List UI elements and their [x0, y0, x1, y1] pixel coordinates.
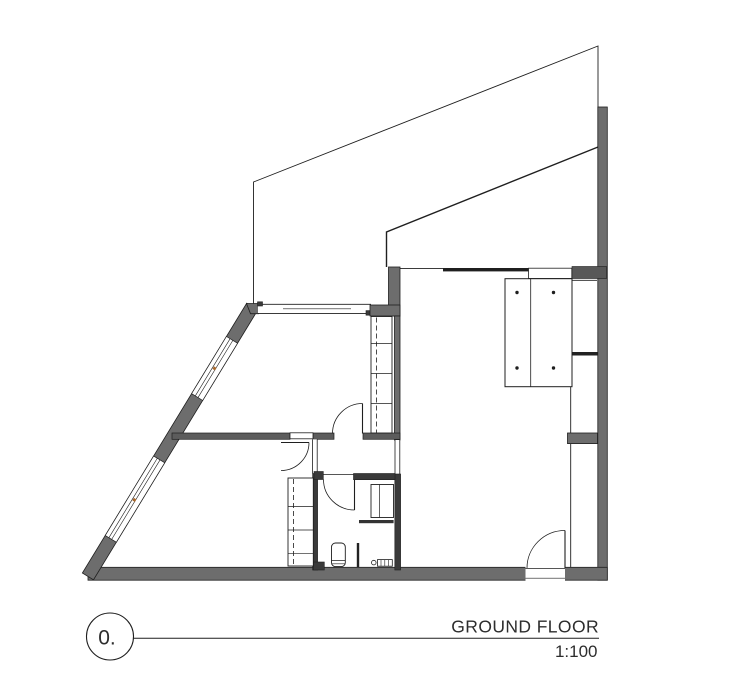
shelf [359, 520, 394, 523]
partition-stub [568, 433, 598, 444]
doors [281, 404, 565, 569]
top-window [529, 268, 572, 278]
floor-number-label: 0. [98, 627, 116, 650]
washer-cabinet [371, 485, 394, 518]
door-entrance [527, 531, 565, 569]
spine-wall-foot [370, 305, 400, 316]
drawing-scale: 1:100 [555, 642, 598, 661]
right-wall [598, 107, 608, 580]
partition-post [357, 543, 359, 567]
spine-wall-thin [395, 440, 400, 474]
built-ins [288, 317, 392, 567]
door-bathroom [324, 480, 355, 511]
radiator [372, 560, 393, 567]
right-room-top-wall [400, 267, 607, 279]
window-upper [192, 336, 238, 400]
hall-wall [172, 433, 400, 440]
spine-wall-mid [395, 316, 401, 440]
toilet [332, 543, 346, 567]
wardrobe-lower-room [288, 478, 313, 566]
title-block: 0. GROUND FLOOR 1:100 [87, 613, 600, 661]
roof-outline [254, 46, 599, 304]
dining-table [505, 279, 572, 387]
drawing-title: GROUND FLOOR [451, 617, 599, 637]
window-lower [105, 456, 164, 542]
drawing-sheet: 0. GROUND FLOOR 1:100 [0, 0, 740, 680]
left-room-top-wall [258, 302, 372, 315]
bathroom-fixtures [332, 485, 394, 568]
spine-wall-bottom [395, 474, 401, 570]
slanted-wall [82, 303, 257, 580]
door-leaf-closed [290, 433, 313, 439]
door-lower-left-room [281, 443, 309, 471]
floor-plan-svg: 0. GROUND FLOOR 1:100 [0, 0, 740, 680]
closet-left-room [371, 317, 392, 434]
door-left-room [333, 404, 363, 434]
